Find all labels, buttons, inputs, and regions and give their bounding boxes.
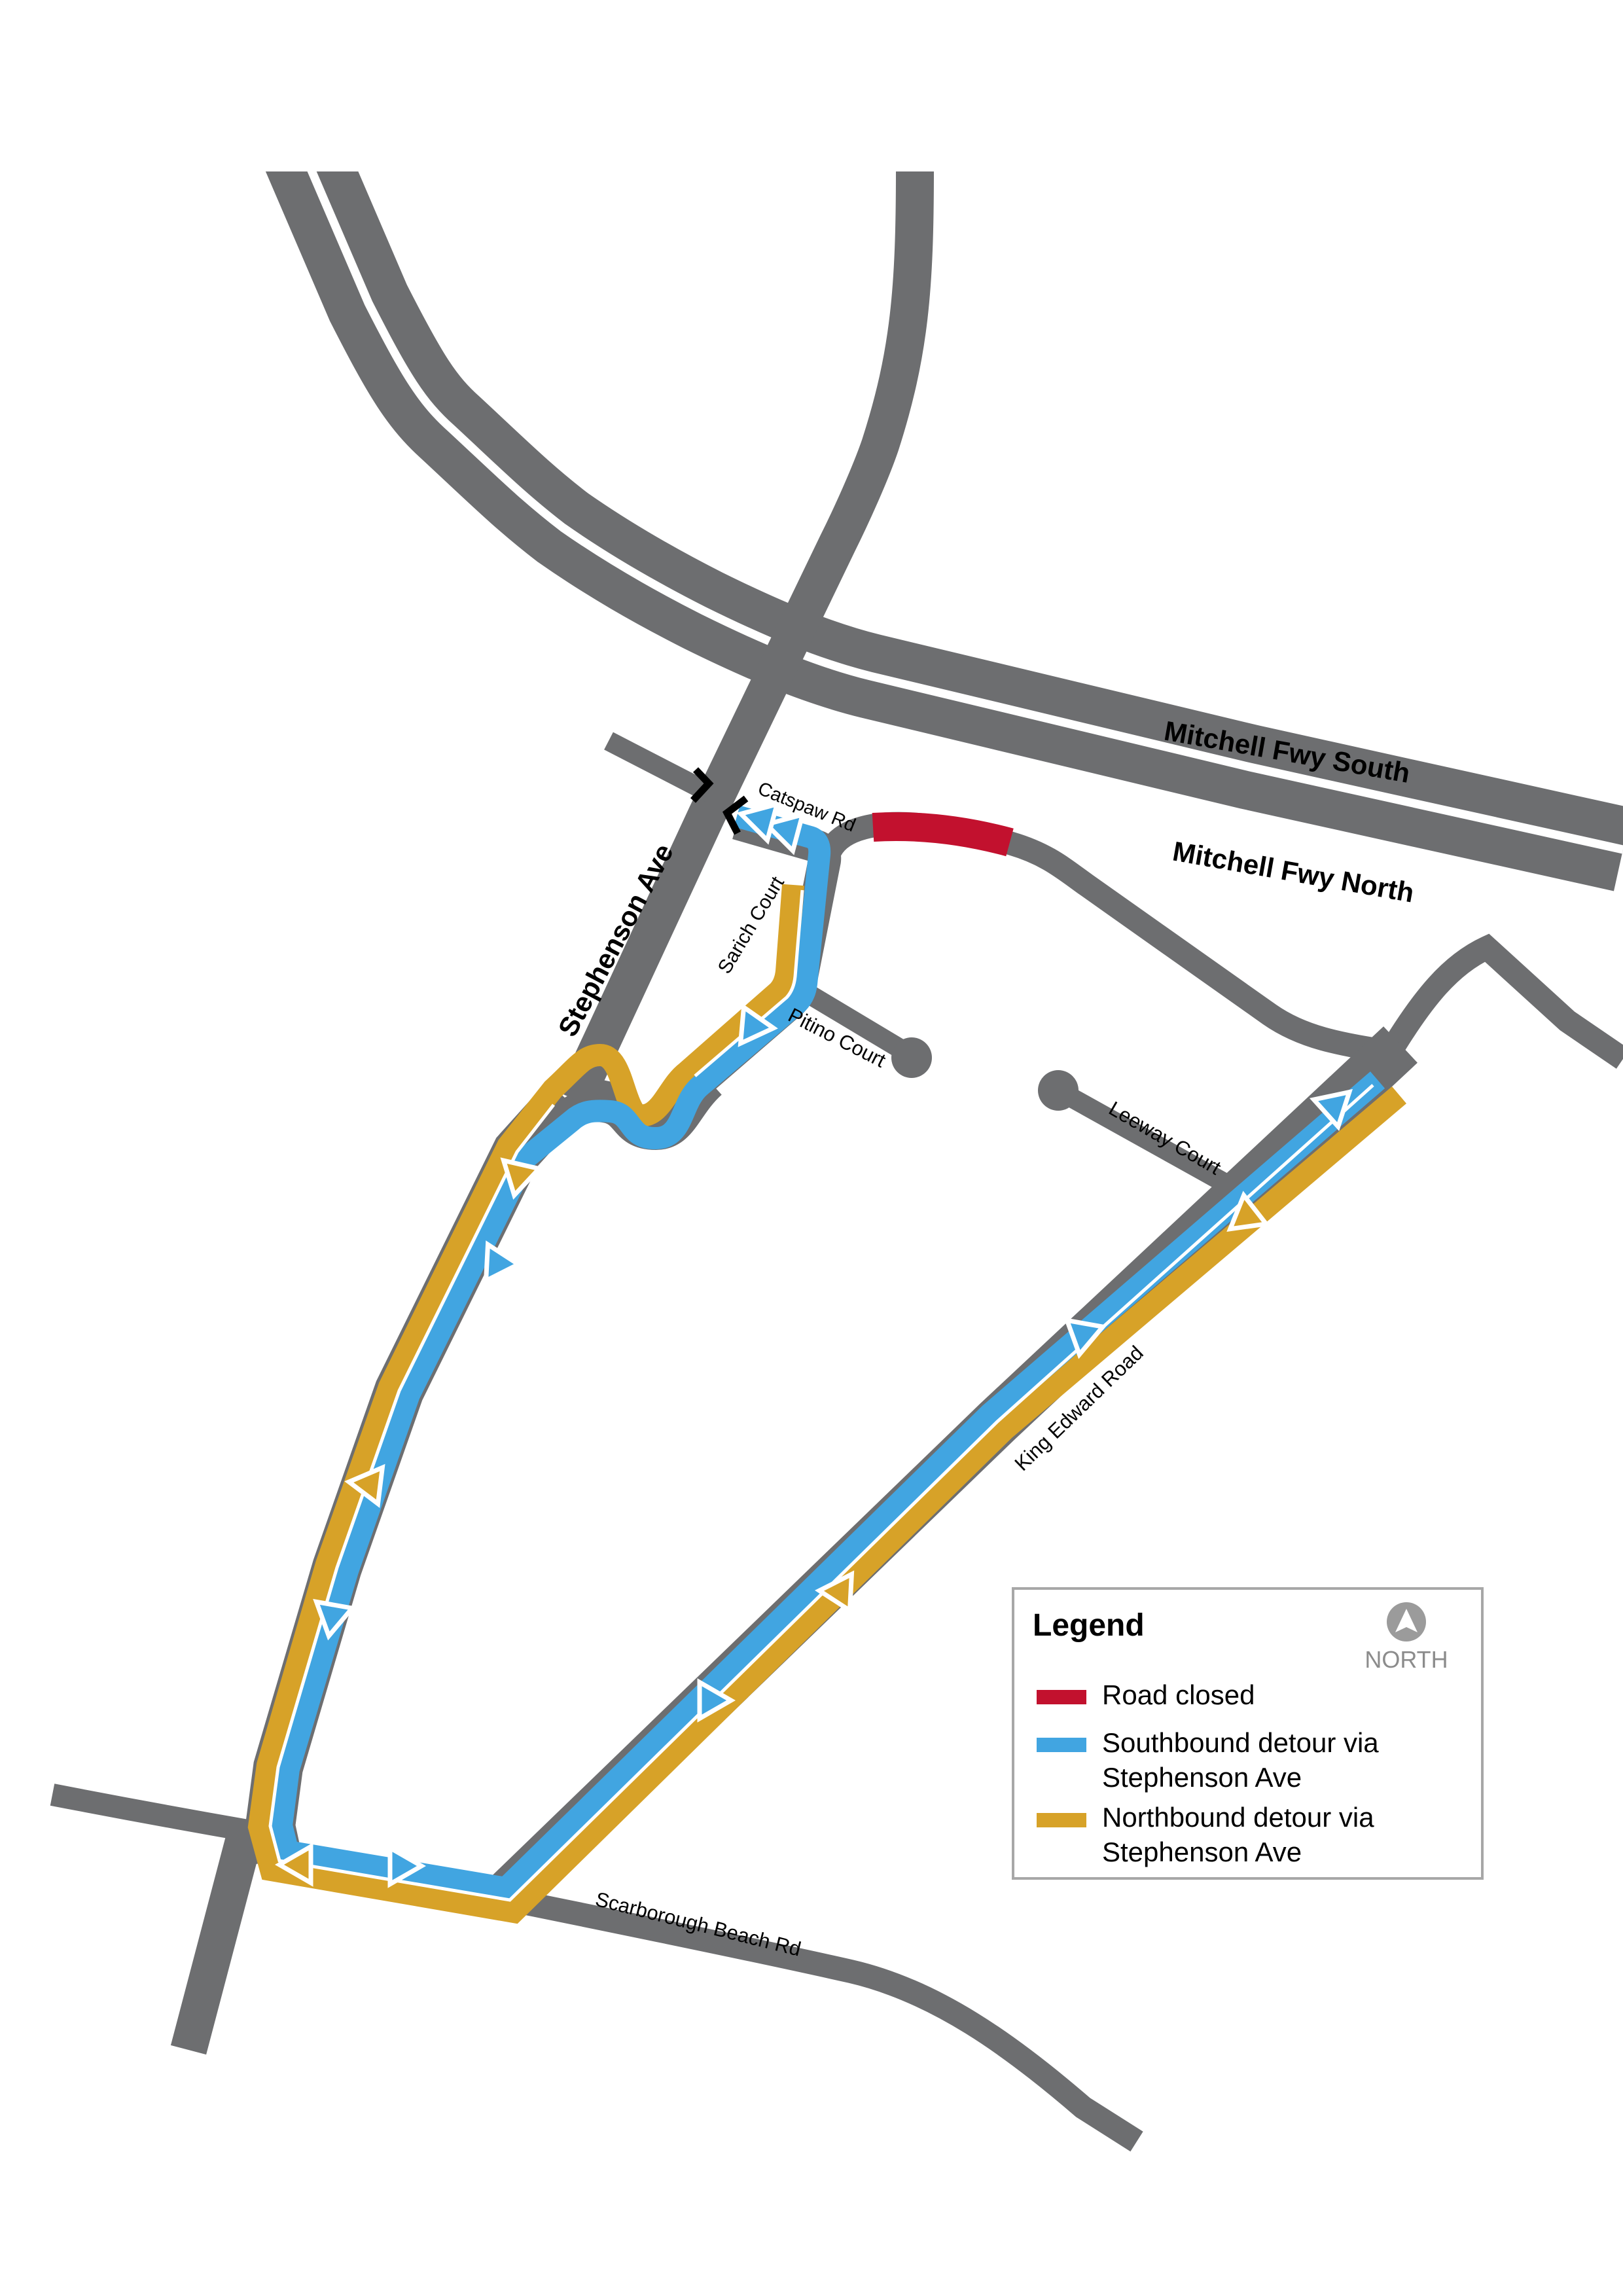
- svg-text:Road closed: Road closed: [1102, 1679, 1255, 1710]
- svg-text:Stephenson Ave: Stephenson Ave: [1102, 1762, 1302, 1793]
- svg-text:Stephenson Ave: Stephenson Ave: [1102, 1837, 1302, 1867]
- svg-text:Legend: Legend: [1033, 1608, 1145, 1643]
- svg-text:Southbound detour via: Southbound detour via: [1102, 1727, 1379, 1758]
- svg-text:Northbound detour via: Northbound detour via: [1102, 1802, 1374, 1833]
- svg-text:NORTH: NORTH: [1364, 1646, 1448, 1673]
